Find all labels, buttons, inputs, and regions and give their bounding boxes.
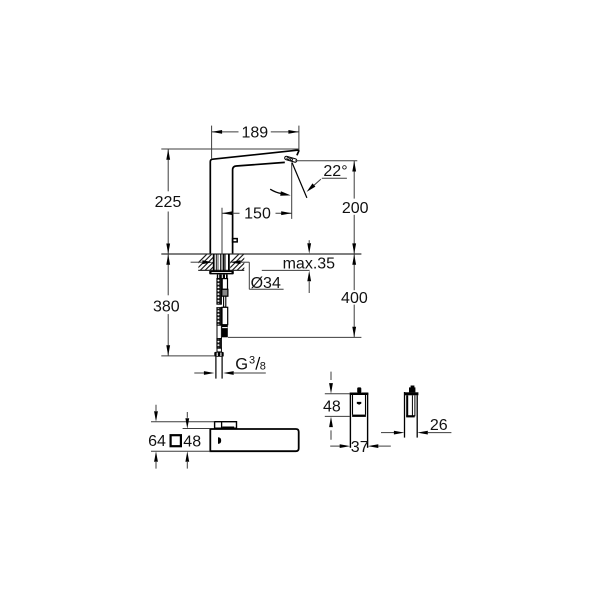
- svg-text:400: 400: [341, 290, 368, 307]
- svg-text:64: 64: [148, 433, 166, 450]
- svg-text:22°: 22°: [323, 163, 347, 180]
- svg-text:26: 26: [430, 417, 448, 434]
- svg-text:37: 37: [351, 439, 369, 456]
- svg-text:200: 200: [342, 200, 369, 217]
- svg-text:Ø34: Ø34: [251, 275, 281, 292]
- svg-text:150: 150: [244, 206, 271, 223]
- svg-text:380: 380: [153, 298, 180, 315]
- svg-text:G: G: [235, 355, 248, 373]
- svg-text:8: 8: [260, 361, 266, 373]
- svg-text:225: 225: [155, 194, 182, 211]
- svg-text:48: 48: [183, 433, 201, 450]
- svg-text:189: 189: [241, 124, 268, 141]
- svg-text:max.35: max.35: [283, 255, 336, 272]
- svg-text:48: 48: [323, 399, 341, 416]
- svg-text:3: 3: [249, 354, 255, 366]
